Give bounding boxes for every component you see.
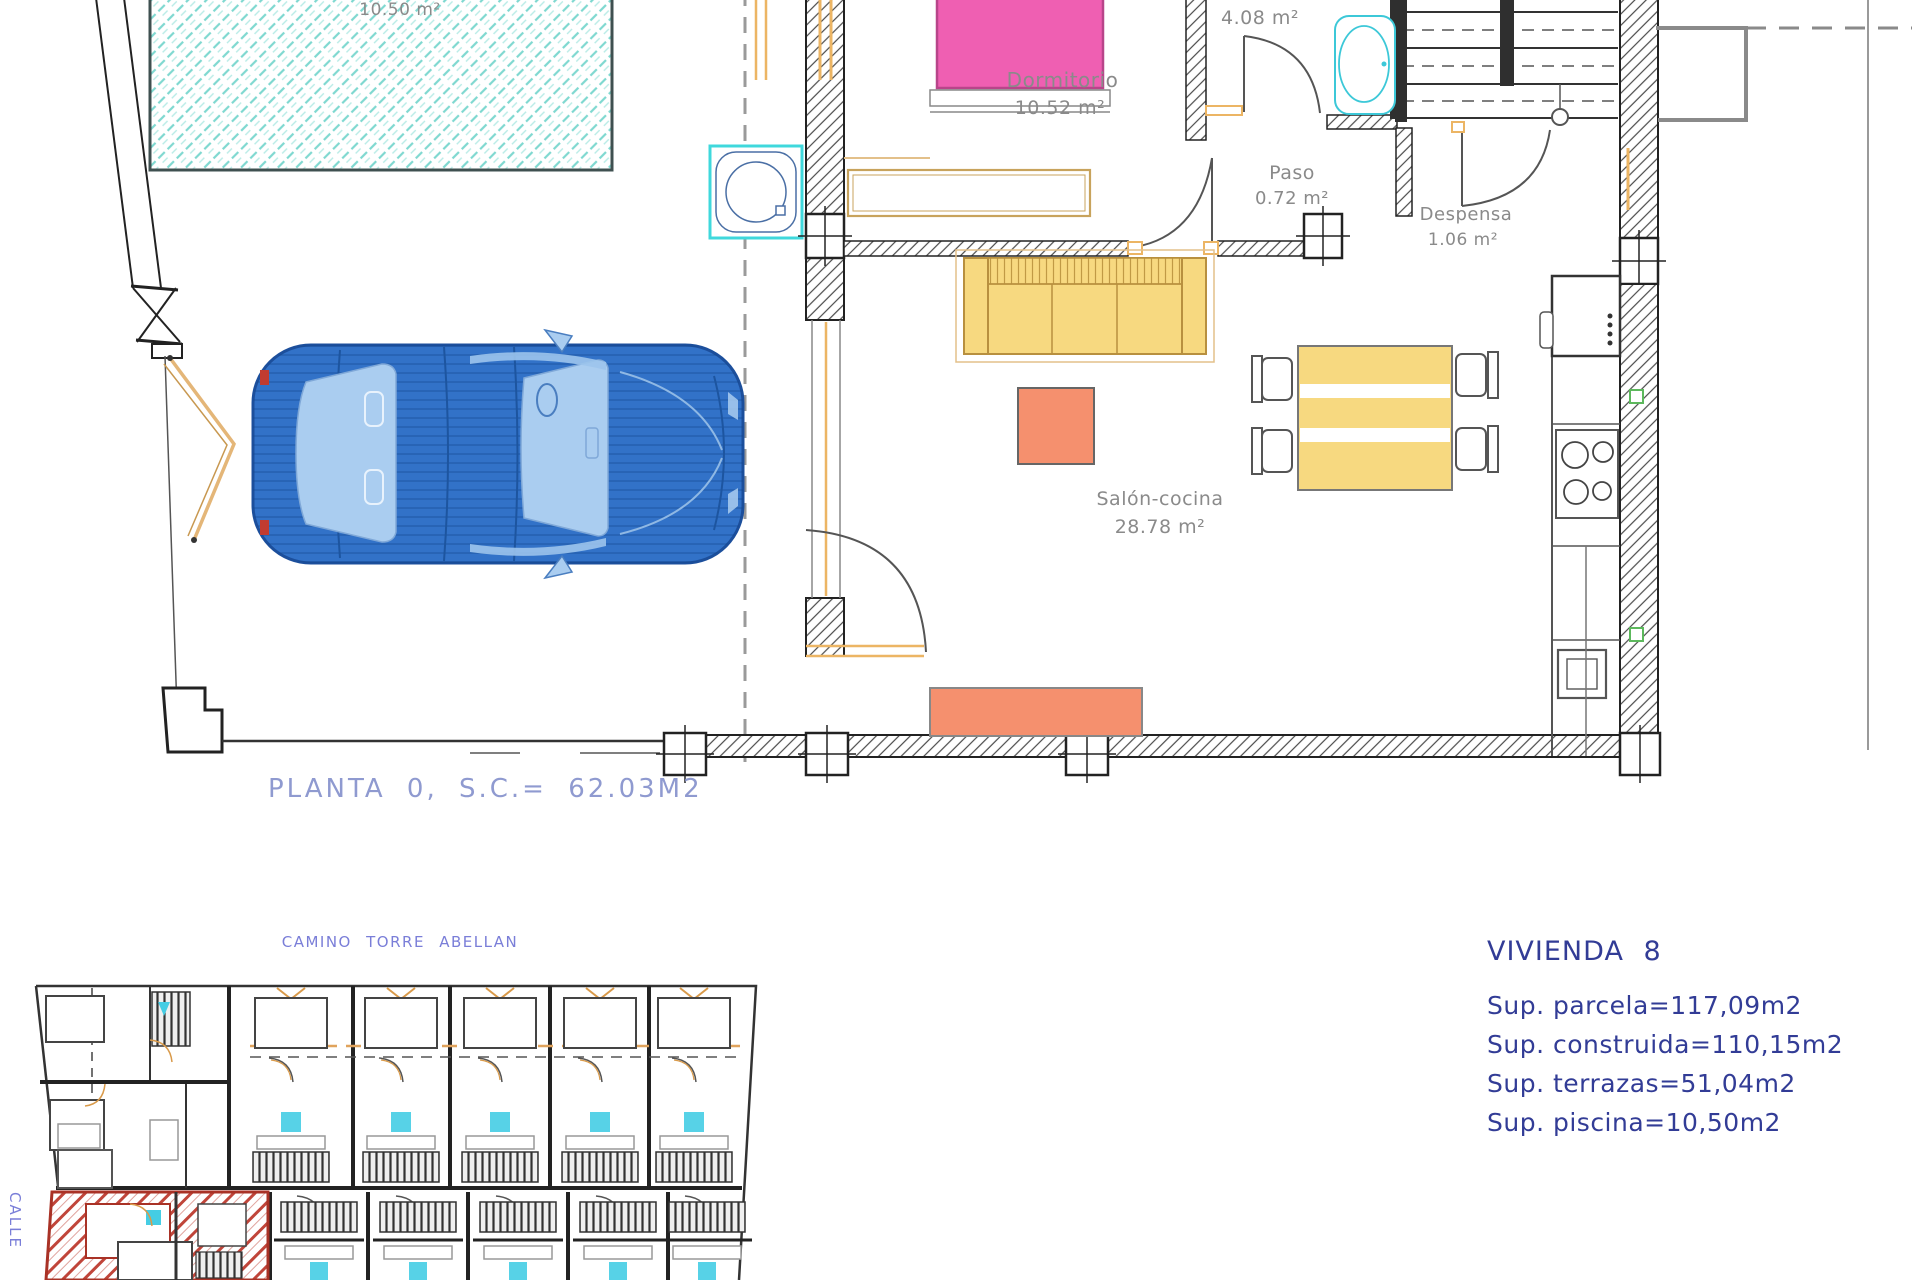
highlighted-unit-vivienda-8: [46, 1192, 268, 1280]
despensa-name-label: Despensa: [1410, 204, 1522, 225]
site-plan: [36, 986, 756, 1280]
salon-name-label: Salón-cocina: [1080, 488, 1240, 510]
street-name-camino: CAMINO TORRE ABELLAN: [255, 933, 545, 951]
paso-name-label: Paso: [1253, 162, 1331, 184]
doors: [806, 36, 1628, 656]
dormitorio-name-label: Dormitorio: [995, 68, 1130, 92]
dining-table-and-chairs: [1252, 346, 1498, 490]
car: [253, 330, 743, 578]
right-terrace-boundary: [1656, 0, 1912, 750]
salon-area-label: 28.78 m²: [1080, 516, 1240, 538]
dormitorio-area-label: 10.52 m²: [995, 97, 1125, 119]
bano-area-label: 4.08 m²: [1215, 7, 1305, 29]
summary-block: VIVIENDA 8 Sup. parcela=117,09m2 Sup. co…: [1487, 936, 1843, 1147]
sofa: [956, 250, 1214, 362]
paso-area-label: 0.72 m²: [1247, 188, 1337, 209]
summary-title: VIVIENDA 8: [1487, 936, 1843, 967]
summary-line-construida: Sup. construida=110,15m2: [1487, 1030, 1843, 1069]
street-name-calle: CALLE: [6, 1192, 24, 1249]
bathroom-sink: [1335, 16, 1395, 114]
pool-area-label: 10.50 m²: [345, 0, 455, 20]
summary-line-parcela: Sup. parcela=117,09m2: [1487, 991, 1843, 1030]
plan-title: PLANTA 0, S.C.= 62.03M2: [268, 774, 703, 804]
bano-name-label: Baño: [1222, 0, 1298, 2]
architectural-drawing-page: 10.50 m² Dormitorio 10.52 m² Baño 4.08 m…: [0, 0, 1920, 1280]
washing-machine: [710, 146, 802, 238]
sideboard: [930, 688, 1142, 736]
summary-line-terrazas: Sup. terrazas=51,04m2: [1487, 1069, 1843, 1108]
kitchen-counter: [1540, 276, 1620, 756]
staircase: [1395, 0, 1618, 125]
pool: [150, 0, 612, 170]
coffee-table: [1018, 388, 1094, 464]
dresser: [844, 158, 1090, 216]
summary-line-piscina: Sup. piscina=10,50m2: [1487, 1108, 1843, 1147]
bed: [930, 0, 1110, 112]
despensa-area-label: 1.06 m²: [1418, 230, 1508, 250]
